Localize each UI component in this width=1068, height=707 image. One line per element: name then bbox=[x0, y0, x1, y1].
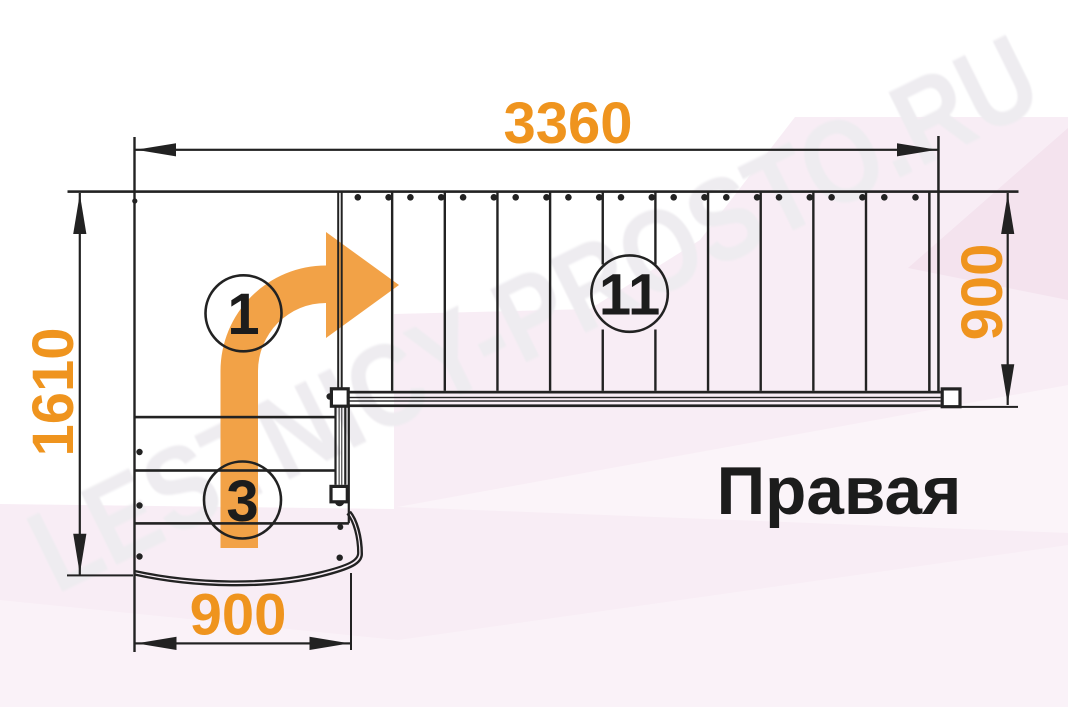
svg-text:11: 11 bbox=[599, 263, 660, 328]
svg-text:3360: 3360 bbox=[503, 91, 632, 156]
svg-text:Правая: Правая bbox=[717, 454, 962, 529]
svg-text:3: 3 bbox=[226, 469, 258, 534]
svg-text:1610: 1610 bbox=[21, 327, 86, 456]
svg-text:900: 900 bbox=[950, 244, 1015, 341]
svg-text:1: 1 bbox=[227, 282, 259, 347]
svg-text:900: 900 bbox=[190, 583, 287, 648]
